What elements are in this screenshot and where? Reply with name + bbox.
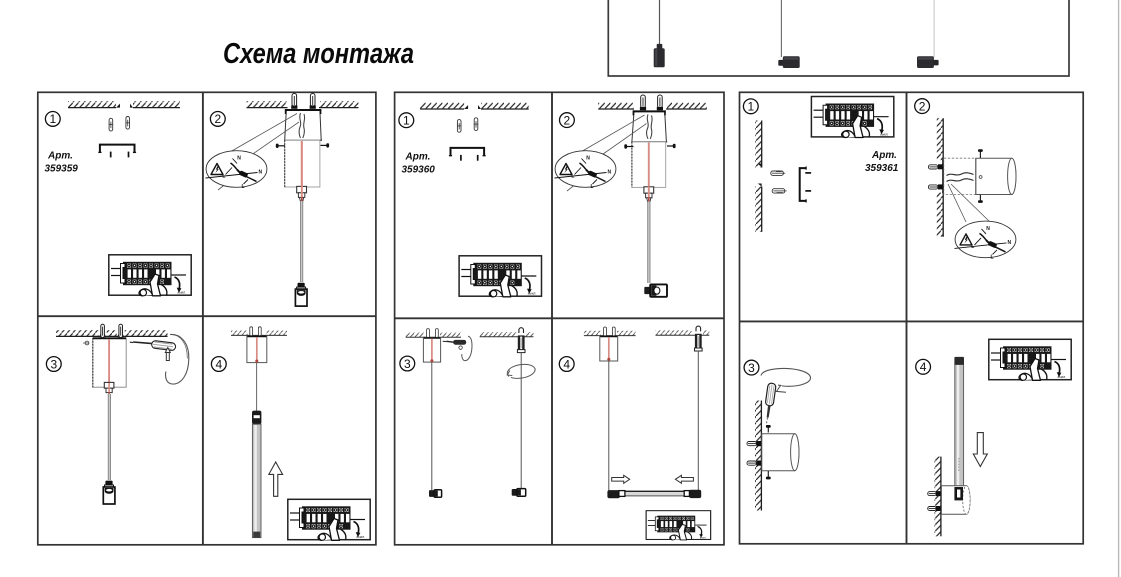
svg-text:3: 3 [404, 357, 411, 371]
svg-text:2: 2 [214, 112, 221, 126]
svg-text:Арт.: Арт. [405, 152, 431, 163]
svg-text:1: 1 [49, 112, 56, 126]
svg-text:2: 2 [919, 99, 926, 113]
svg-text:359360: 359360 [402, 165, 436, 176]
svg-text:2: 2 [564, 113, 571, 127]
svg-text:Арт.: Арт. [47, 151, 73, 162]
svg-text:359359: 359359 [45, 164, 79, 175]
svg-text:4: 4 [563, 357, 570, 371]
svg-text:4: 4 [920, 360, 927, 374]
svg-text:1: 1 [403, 114, 410, 128]
svg-text:1: 1 [747, 100, 754, 114]
svg-text:3: 3 [50, 357, 57, 371]
svg-text:3: 3 [748, 361, 755, 375]
svg-text:359361: 359361 [865, 163, 899, 174]
svg-text:4: 4 [215, 357, 222, 371]
svg-text:Схема монтажа: Схема монтажа [223, 38, 414, 70]
svg-text:Арт.: Арт. [871, 150, 897, 161]
